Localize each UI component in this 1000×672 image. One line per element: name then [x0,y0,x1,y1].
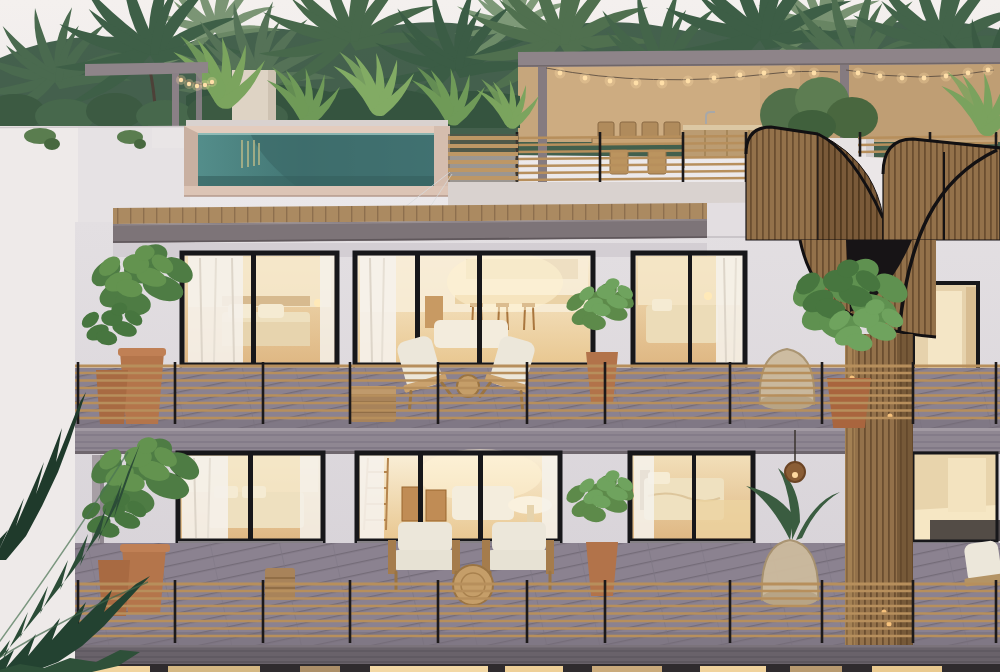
terracotta-pot [827,378,871,434]
window-living-2f [355,252,593,365]
terracotta-pot [96,370,128,424]
plunge-pool [184,120,450,196]
stair-accent-light [887,622,892,627]
interior-glow [447,252,563,312]
hallway-opening-1f [913,453,1000,541]
dining-chair [426,490,446,521]
sofa [434,320,508,348]
left-side-wall [0,126,82,672]
balcony-floor-1 [75,428,1000,647]
stair-fin-right [883,139,1000,240]
pool-coping-right [434,126,450,194]
pendant-lamp [785,462,805,482]
window-bedroom-right-1f [630,453,753,541]
bottom-fascia [75,645,1000,666]
pillow [652,299,672,311]
sheer-curtain [634,456,654,539]
pool-coping-left [184,126,198,194]
pool-coping-bottom [184,186,450,196]
rendering-canvas: Dusk 3D exterior rendering of a modern t… [0,0,1000,672]
sheer-curtain [716,256,743,364]
terracotta-pot [586,542,618,596]
ground-floor-glow [75,664,1000,672]
bedside-lamp [704,292,712,300]
window-bedroom-right-2f [633,253,745,365]
side-table [457,375,479,397]
pool-slat-fence [448,134,518,186]
sheer-curtain [360,256,396,364]
pillow [242,486,266,498]
pillow [258,304,284,318]
window-bedroom-left-1f [178,453,323,541]
pool-coping-top [184,126,450,133]
window-bedroom-left-2f [182,253,337,370]
sheer-curtain [360,456,384,539]
architectural-rendering: Dusk 3D exterior rendering of a modern t… [0,0,1000,672]
stair-fin-left [746,127,818,240]
pergola-post [538,67,547,185]
